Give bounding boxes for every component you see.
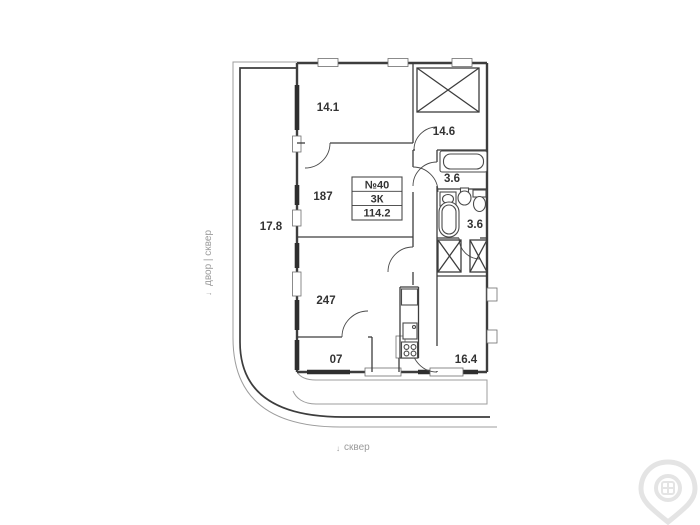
bathtub-icon <box>440 151 487 172</box>
direction-arrow-icon: ↓ <box>204 292 213 296</box>
unit-area: 114.2 <box>364 208 391 220</box>
direction-arrow-icon: ↓ <box>336 444 340 453</box>
fridge-icon <box>402 289 418 305</box>
room-label-bathroom-2: 3.6 <box>467 219 483 231</box>
toilet-icon <box>473 190 486 212</box>
floor-plan-drawing: №40 3К 114.2 14.1 14.6 17.8 187 3.6 3.6 … <box>0 0 700 525</box>
pedestal-sink-icon <box>458 188 471 205</box>
shaft-box <box>417 68 479 112</box>
wardrobe-boxes <box>438 240 487 272</box>
water-heater-icon <box>439 202 459 237</box>
room-label-living-room: 247 <box>316 295 335 307</box>
room-label-loggia: 07 <box>330 354 343 366</box>
stove-icon <box>402 342 418 358</box>
kitchen-sink-icon <box>403 323 417 339</box>
surroundings-left-label: двор | сквер <box>203 230 214 286</box>
room-label-bathroom-1: 3.6 <box>444 173 460 185</box>
surroundings-bottom-label: сквер <box>344 442 370 453</box>
brand-logo-icon <box>641 462 695 522</box>
room-label-bedroom-1: 14.1 <box>317 102 340 114</box>
room-label-balcony: 17.8 <box>260 221 283 233</box>
unit-info-box: №40 3К 114.2 <box>352 177 402 220</box>
room-label-kitchen: 16.4 <box>455 354 478 366</box>
unit-number: №40 <box>365 180 390 192</box>
room-label-bedroom-3: 187 <box>313 191 332 203</box>
room-label-bedroom-2: 14.6 <box>433 126 455 138</box>
unit-type: 3К <box>371 194 384 206</box>
floor-plan-page: №40 3К 114.2 14.1 14.6 17.8 187 3.6 3.6 … <box>0 0 700 525</box>
bottom-balcony-strip <box>293 372 487 404</box>
